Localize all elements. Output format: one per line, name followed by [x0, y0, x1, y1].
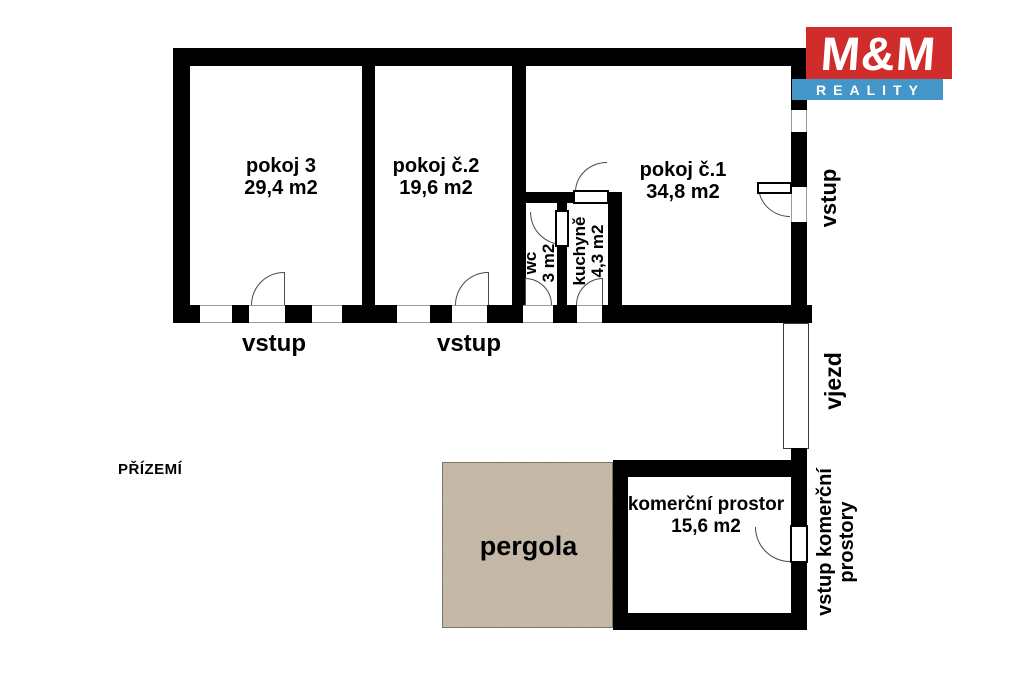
wall-wc-kuchyne-top: [526, 192, 575, 203]
pergola-area: pergola: [442, 462, 613, 628]
room-area: 34,8 m2: [603, 181, 763, 203]
entrance-label-line2: prostory: [836, 460, 858, 624]
door-leaf-komercni: [790, 525, 808, 563]
wall-kuchyne-pokoj1: [608, 192, 622, 305]
room-name: pokoj 3: [201, 155, 361, 177]
logo-brand-text: M&M: [819, 26, 938, 81]
door-arc-pokoj3: [251, 272, 284, 305]
door-leaf-pokoj3: [284, 272, 285, 305]
room-label-pokoj1: pokoj č.1 34,8 m2: [603, 159, 763, 203]
wall-komercni-top: [613, 460, 807, 477]
wall-komercni-right-segment: [791, 460, 807, 525]
driveway-label: vjezd: [821, 345, 845, 417]
wall-top: [173, 48, 812, 66]
wall-komercni-left: [613, 460, 628, 630]
room-area: 3 m2: [540, 233, 558, 293]
logo-tagline: REALITY: [792, 79, 943, 100]
room-label-wc: wc 3 m2: [522, 233, 558, 293]
wall-bottom-segment: [232, 305, 249, 323]
wall-bottom-segment: [487, 305, 523, 323]
door-arc-pokoj2: [455, 272, 488, 305]
wall-bottom-segment: [602, 305, 812, 323]
entrance-label-pokoj3: vstup: [214, 330, 334, 358]
wall-bottom-segment: [553, 305, 577, 323]
wall-bottom-segment: [430, 305, 452, 323]
entrance-label-pokoj1: vstup: [817, 163, 841, 233]
room-label-komercni: komerční prostor 15,6 m2: [626, 494, 786, 538]
wall-left: [173, 48, 190, 323]
room-area: 4,3 m2: [589, 211, 607, 291]
wall-bottom-segment: [285, 305, 312, 323]
room-label-pokoj2: pokoj č.2 19,6 m2: [356, 155, 516, 199]
wall-komercni-bottom: [613, 613, 807, 630]
floor-title: PŘÍZEMÍ: [118, 461, 182, 478]
room-area: 29,4 m2: [201, 177, 361, 199]
wall-right-segment: [791, 132, 807, 187]
room-name: kuchyně: [571, 211, 589, 291]
entrance-label-komercni: vstup komerční prostory: [814, 460, 858, 624]
wall-komercni-right-segment: [791, 563, 807, 630]
room-name: pokoj č.1: [603, 159, 763, 181]
floorplan: pergola pokoj 3 29,4 m2 pokoj č.2 19,6 m…: [0, 0, 1024, 683]
entrance-label-pokoj2: vstup: [409, 330, 529, 358]
wall-wc-kuchyne: [557, 246, 567, 305]
logo-brand: M&M: [806, 27, 952, 79]
entrance-label-line1: vstup komerční: [814, 460, 836, 624]
room-label-kuchyne: kuchyně 4,3 m2: [571, 211, 607, 291]
room-name: wc: [522, 233, 540, 293]
room-area: 19,6 m2: [356, 177, 516, 199]
wall-bottom-segment: [342, 305, 397, 323]
logo-tagline-text: REALITY: [810, 82, 925, 98]
door-leaf-pokoj2: [488, 272, 489, 305]
wall-bottom-segment: [173, 305, 200, 323]
driveway-gate: [783, 323, 809, 449]
room-name: komerční prostor: [626, 494, 786, 516]
room-name: pokoj č.2: [356, 155, 516, 177]
room-area: 15,6 m2: [626, 516, 786, 538]
room-label-pokoj3: pokoj 3 29,4 m2: [201, 155, 361, 199]
pergola-label: pergola: [443, 531, 614, 562]
